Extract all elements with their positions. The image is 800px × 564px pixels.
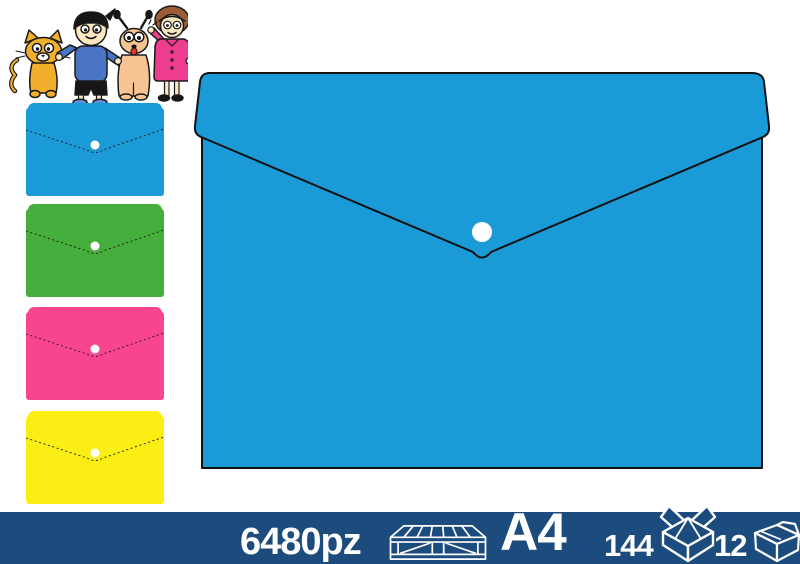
pack-quantity: 144 [604, 530, 653, 561]
carton-quantity: 12 [714, 530, 746, 561]
open-box-icon [659, 501, 717, 564]
snap-button [91, 242, 100, 251]
pallet-quantity: 6480pz [240, 523, 361, 561]
color-variant-green [25, 203, 165, 298]
family-cartoon-illustration [8, 3, 188, 105]
snap-button [91, 449, 100, 458]
main-envelope [190, 68, 770, 473]
boy-figure [56, 9, 122, 105]
format-label: A4 [500, 506, 566, 559]
snap-button [91, 345, 100, 354]
grandma-figure [148, 6, 188, 101]
carton-box-icon [751, 521, 800, 564]
product-sheet: 6480pz A4 144 12 [0, 0, 800, 564]
snap-button [91, 141, 100, 150]
color-variant-blue [25, 102, 165, 197]
color-variant-pink [25, 306, 165, 401]
snap-button [472, 222, 492, 242]
cat-figure [11, 30, 70, 98]
pallet-icon [386, 524, 490, 562]
color-variant-yellow [25, 410, 165, 505]
